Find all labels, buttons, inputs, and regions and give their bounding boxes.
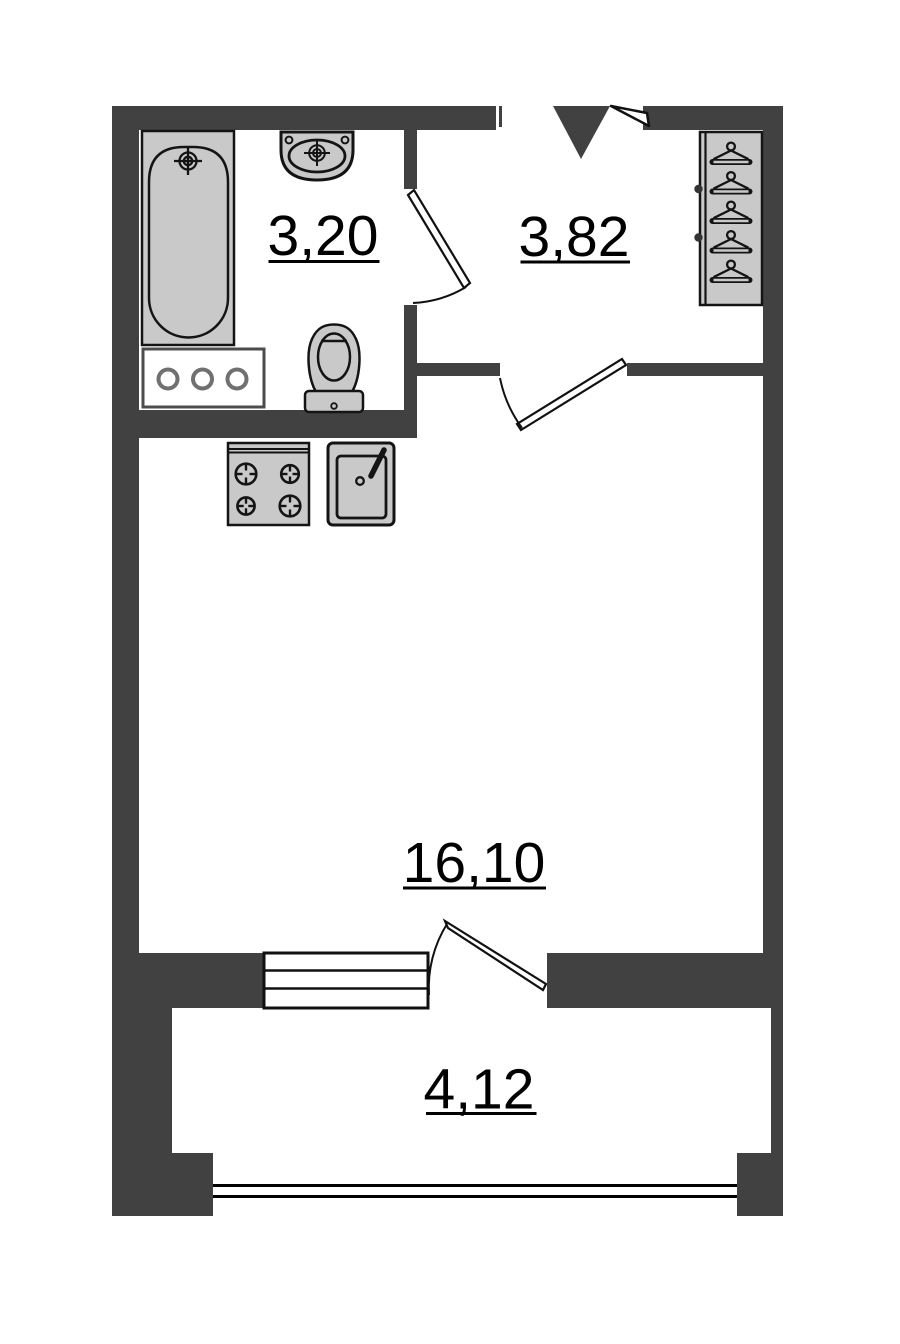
svg-text:3,82: 3,82 [519, 205, 630, 269]
svg-text:3,20: 3,20 [268, 204, 379, 268]
svg-text:16,10: 16,10 [403, 831, 546, 895]
svg-text:4,12: 4,12 [424, 1058, 535, 1122]
